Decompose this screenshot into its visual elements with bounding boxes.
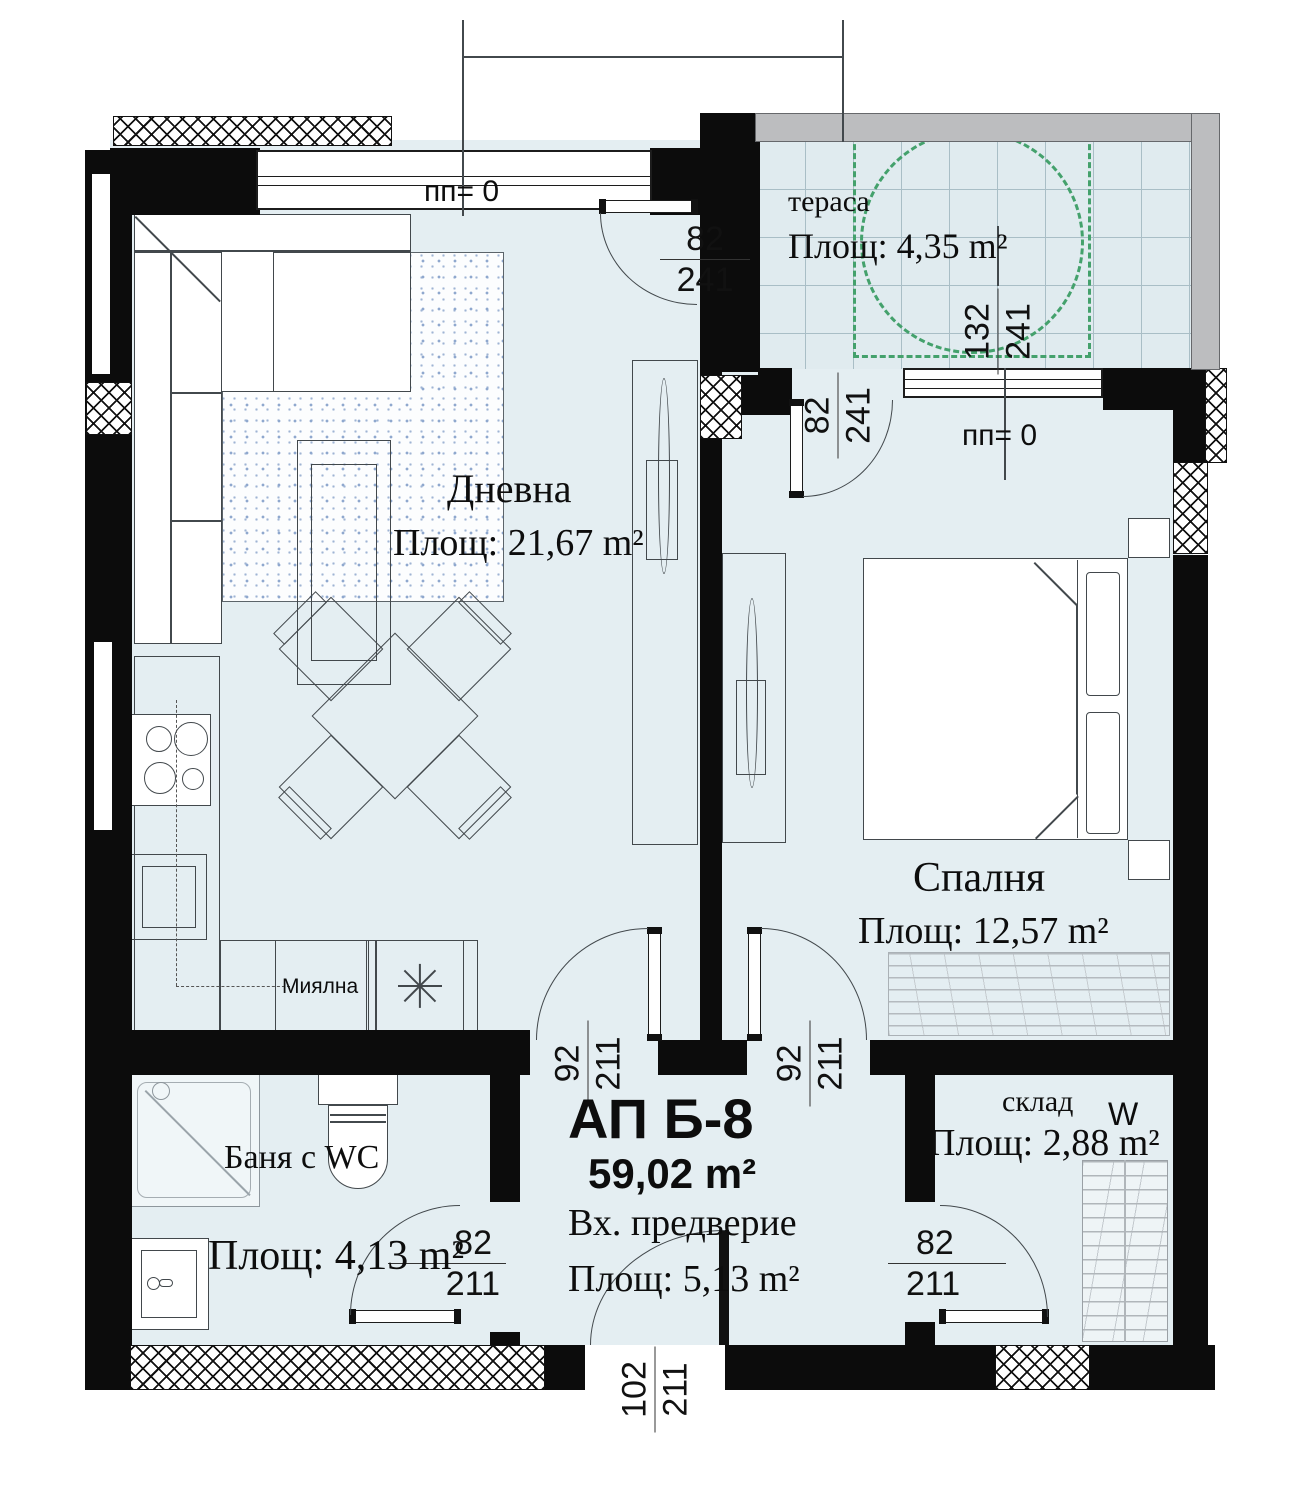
wall-junction-block bbox=[740, 375, 792, 415]
dim-width: 82 bbox=[801, 397, 835, 435]
bed-pillow bbox=[1086, 572, 1120, 696]
dim-bedroom-terrace-door: 82 241 bbox=[801, 373, 876, 459]
wall-right-main bbox=[1173, 555, 1208, 1390]
axis-line bbox=[462, 56, 844, 58]
dim-height: 241 bbox=[842, 387, 876, 444]
dim-terrace-window: 132 241 bbox=[961, 289, 1036, 375]
wall-bath-right-top bbox=[490, 1075, 520, 1202]
dim-bedroom-hall-door: 92 211 bbox=[773, 1021, 848, 1107]
dim-width: 132 bbox=[961, 303, 995, 360]
wall-bedroom-terrace-right bbox=[1103, 368, 1208, 410]
counter-centerline bbox=[176, 700, 178, 986]
insulation-hatch-right bbox=[1173, 462, 1208, 554]
toilet-seat-line bbox=[330, 1121, 386, 1123]
wardrobe-mark: W bbox=[1108, 1098, 1138, 1132]
counter-centerline bbox=[176, 986, 290, 988]
dim-height: 241 bbox=[677, 263, 734, 297]
appliance-separator bbox=[368, 940, 376, 1032]
hallway-name: Вх. предверие bbox=[568, 1204, 797, 1244]
stove-burner bbox=[146, 726, 172, 752]
living-terrace-door-leaf bbox=[600, 200, 697, 213]
dim-width: 82 bbox=[686, 222, 724, 256]
nightstand bbox=[1128, 518, 1170, 558]
bathroom-name: Баня с WC bbox=[224, 1140, 379, 1176]
terrace-outer-wall-right bbox=[1191, 113, 1220, 370]
shower-drain-icon bbox=[152, 1082, 170, 1100]
dim-line bbox=[888, 1263, 1006, 1264]
wall-top-left bbox=[110, 148, 260, 215]
sofa-top-cushion bbox=[273, 252, 411, 392]
dim-line bbox=[660, 259, 750, 260]
wall-niche bbox=[92, 174, 110, 374]
hallway-area: Площ: 5,13 m² bbox=[568, 1260, 800, 1300]
nightstand bbox=[1128, 840, 1170, 880]
wall-right-upper bbox=[1173, 410, 1208, 465]
insulation-hatch-left bbox=[86, 382, 132, 435]
dim-height: 211 bbox=[814, 1036, 848, 1090]
bathroom-area: Площ: 4,13 m² bbox=[208, 1234, 464, 1278]
dim-line bbox=[655, 1347, 656, 1433]
wall-hall-stub-stem bbox=[700, 962, 722, 1042]
faucet-icon bbox=[159, 1279, 173, 1287]
terrace-area: Площ: 4,35 m² bbox=[788, 228, 1007, 266]
dim-height: 211 bbox=[906, 1267, 960, 1301]
living-cabinet-door-leaf bbox=[658, 378, 670, 574]
dim-line bbox=[810, 1021, 811, 1107]
bedroom-area: Площ: 12,57 m² bbox=[858, 912, 1109, 952]
wall-hall-stub bbox=[658, 1040, 747, 1075]
wall-bottom-seg bbox=[725, 1345, 995, 1390]
wall-storage-left-bottom bbox=[905, 1322, 935, 1347]
dim-storage-door: 82 211 bbox=[888, 1226, 1006, 1301]
floor-plan: 82 241 132 241 82 241 92 211 92 211 82 2… bbox=[0, 0, 1300, 1500]
apartment-id: АП Б-8 bbox=[568, 1090, 754, 1149]
dim-width: 82 bbox=[916, 1226, 954, 1260]
storage-wardrobe-divider bbox=[1124, 1160, 1126, 1342]
sofa-cushion-divider bbox=[170, 520, 222, 522]
toilet-seat-line bbox=[330, 1114, 386, 1116]
insulation-hatch-bottom-right bbox=[995, 1345, 1090, 1390]
insulation-hatch-top-left bbox=[113, 116, 392, 146]
wall-niche bbox=[94, 642, 112, 830]
apartment-area: 59,02 m² bbox=[588, 1152, 756, 1196]
dim-line bbox=[998, 289, 999, 375]
dim-width: 92 bbox=[551, 1045, 585, 1083]
stove-burner bbox=[174, 722, 208, 756]
axis-line bbox=[842, 20, 844, 142]
wall-bedroom-bottom bbox=[870, 1040, 1173, 1075]
insulation-hatch-bottom-left bbox=[130, 1345, 545, 1390]
bed-pillow bbox=[1086, 712, 1120, 834]
sofa-left-backrest-line bbox=[170, 252, 172, 644]
window-glass-line bbox=[905, 379, 1101, 389]
bedroom-cabinet-door-leaf bbox=[746, 598, 758, 788]
dim-entrance-door: 102 211 bbox=[618, 1347, 693, 1433]
wall-kitchen-bath bbox=[85, 1030, 530, 1075]
wall-bottom-seg bbox=[545, 1345, 585, 1390]
dim-width: 92 bbox=[773, 1045, 807, 1083]
storage-name: склад bbox=[1002, 1086, 1073, 1118]
living-hall-door-leaf bbox=[648, 928, 661, 1040]
terrace-name: тераса bbox=[788, 186, 870, 218]
kitchen-sink-inner bbox=[142, 866, 196, 928]
dim-line bbox=[838, 373, 839, 459]
bedroom-name: Спалня bbox=[913, 856, 1045, 900]
wall-living-bedroom bbox=[700, 372, 722, 1040]
living-area: Площ: 21,67 m² bbox=[393, 524, 644, 564]
living-name: Дневна bbox=[447, 468, 572, 510]
toilet-tank bbox=[318, 1071, 398, 1105]
dim-height: 211 bbox=[659, 1362, 693, 1416]
dim-living-terrace-door: 82 241 bbox=[660, 222, 750, 297]
bedroom-rug bbox=[888, 952, 1170, 1036]
dim-width: 102 bbox=[618, 1361, 652, 1418]
terrace-outer-wall-top bbox=[755, 113, 1220, 142]
insulation-hatch-terrace-right bbox=[1205, 368, 1227, 463]
kitchen-sink-label: Миялна bbox=[282, 976, 358, 998]
dim-height: 211 bbox=[592, 1036, 626, 1090]
stove-burner bbox=[144, 762, 176, 794]
parapet-label-bedroom: пп= 0 bbox=[962, 420, 1037, 452]
bedroom-hall-door-leaf bbox=[748, 928, 761, 1040]
insulation-hatch-mid bbox=[700, 375, 742, 439]
parapet-label-living: пп= 0 bbox=[424, 176, 499, 208]
sofa-left-section bbox=[134, 252, 222, 644]
wall-bottom-seg bbox=[1090, 1345, 1215, 1390]
dim-height: 241 bbox=[1002, 303, 1036, 360]
stove-burner bbox=[182, 768, 204, 790]
sofa-cushion-divider bbox=[170, 392, 222, 394]
